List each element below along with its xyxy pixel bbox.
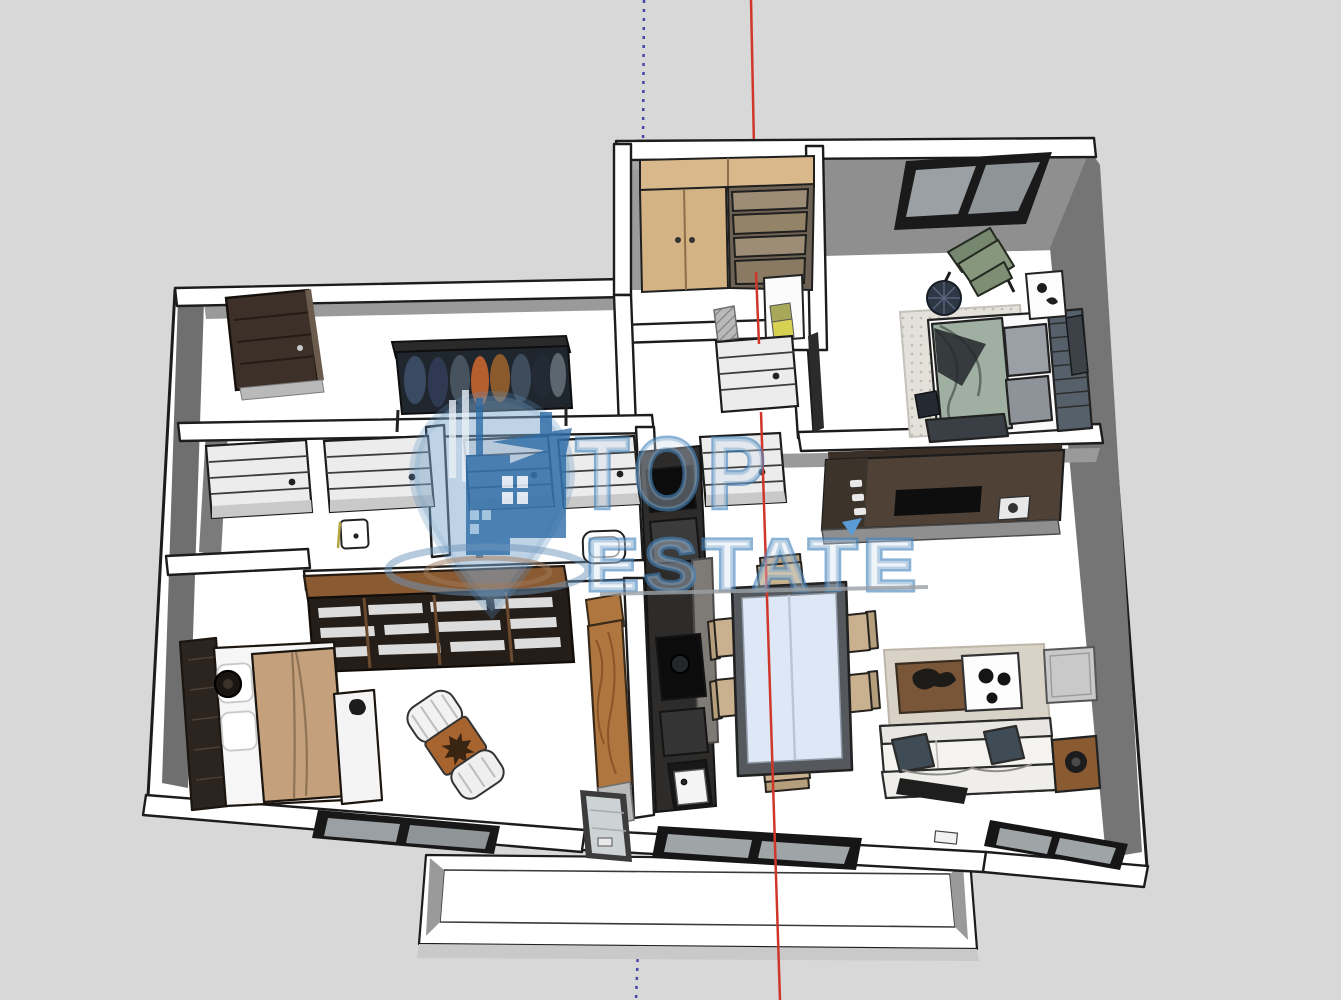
door-handle-icon [297, 345, 303, 351]
toilet [338, 519, 369, 548]
kitchen-sink-top [998, 496, 1030, 520]
door-handle-icon [773, 373, 780, 380]
pillow [1006, 376, 1052, 424]
pillow [221, 711, 258, 751]
kitchen-sink-lower [668, 760, 712, 808]
nightstand [1026, 271, 1066, 319]
round-mat [927, 281, 961, 315]
hatch-mark [714, 306, 738, 342]
balcony [417, 855, 979, 961]
bedroom-door [716, 336, 798, 412]
balcony-floor [440, 870, 955, 927]
wall-hall-left [614, 295, 636, 427]
cooktop [894, 486, 982, 516]
glass-door [580, 790, 632, 862]
wall-storage-left [614, 144, 631, 295]
storage-room [640, 156, 814, 292]
pillow [1004, 324, 1050, 376]
front-door [226, 290, 318, 390]
watermark-line1: TOP [576, 418, 772, 530]
floorplan-canvas: TOP ESTATE [0, 0, 1341, 1000]
dark-cushion [892, 734, 934, 772]
white-tray-table [962, 653, 1022, 711]
wardrobe-handle-icon [675, 237, 681, 243]
wardrobe-handle-icon [689, 237, 695, 243]
door-handle-icon [289, 479, 296, 486]
dark-cushion [984, 726, 1024, 764]
floor-book [915, 391, 940, 418]
side-table [1044, 647, 1097, 703]
media-cabinet-speaker [1052, 736, 1100, 792]
floorplan-render: TOP ESTATE [0, 0, 1341, 1000]
window-handle [934, 831, 957, 844]
interior-door-1 [206, 440, 312, 518]
bed-foot-bench [926, 414, 1008, 442]
